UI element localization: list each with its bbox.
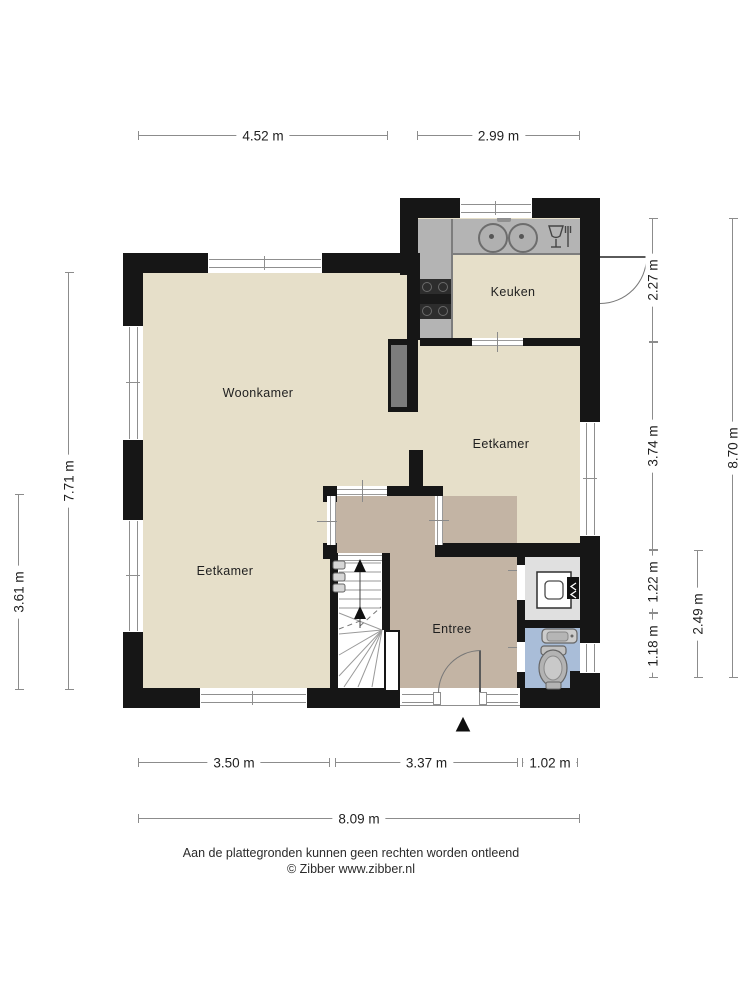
north-arrow-icon: ▲ — [451, 712, 476, 737]
dimension-top-left: 4.52 m — [138, 135, 388, 136]
dimension-left-total: 7.71 m — [68, 272, 69, 690]
window-bottom-left — [200, 688, 307, 708]
opening-tick — [429, 520, 449, 521]
footer: Aan de plattegronden kunnen geen rechten… — [1, 845, 701, 877]
wall-entree-top — [387, 486, 443, 496]
dimension-bottom-1: 3.50 m — [138, 762, 330, 763]
door-gap-toilet — [517, 642, 525, 672]
chimney-fill — [391, 345, 407, 407]
wall-south-rooms-top — [443, 543, 600, 557]
door-gap-meterkast — [517, 565, 525, 600]
wall-bottomright-corner — [570, 671, 600, 708]
window-toilet-right — [580, 643, 600, 673]
opening-stair-top — [338, 553, 382, 561]
wall-stair-left — [330, 553, 338, 688]
room-label-eetkamer-right: Eetkamer — [473, 437, 530, 451]
dimension-left-inner: 3.61 m — [18, 494, 19, 690]
window-kitchen-top — [460, 198, 532, 218]
window-eetkamer-right — [580, 422, 600, 536]
sink-drain-right — [519, 234, 524, 239]
wall-exterior-left — [123, 253, 143, 708]
dimension-top-right: 2.99 m — [417, 135, 580, 136]
window-top-main — [208, 253, 322, 273]
window-left-upper — [123, 326, 143, 440]
room-label-entree: Entree — [432, 622, 471, 636]
stair-newel-post — [384, 630, 400, 692]
dimension-bottom-3: 1.02 m — [522, 762, 578, 763]
opening-tick — [317, 521, 337, 522]
floor-meterkast — [525, 557, 580, 620]
window-left-lower — [123, 520, 143, 632]
opening-tick — [362, 480, 363, 502]
wall-exterior-bottom — [123, 688, 600, 708]
wall-meterkast-toilet — [525, 620, 580, 628]
wall-kitchen-left — [400, 198, 418, 275]
room-label-woonkamer: Woonkamer — [223, 386, 294, 400]
footer-copyright: © Zibber www.zibber.nl — [1, 861, 701, 877]
stove-icon — [419, 279, 451, 319]
dimension-right-3: 1.22 m — [652, 550, 653, 613]
room-label-keuken: Keuken — [491, 285, 536, 299]
dimension-right-2: 3.74 m — [652, 342, 653, 550]
opening-tick — [497, 332, 498, 352]
wall-woonkamer-keuken — [407, 273, 420, 340]
dimension-right-total: 8.70 m — [732, 218, 733, 678]
dimension-right-1: 2.27 m — [652, 218, 653, 342]
floor-plan: ▲ Keuken Woonkamer Eetkamer Eetkamer Ent… — [0, 0, 750, 1000]
footer-disclaimer: Aan de plattegronden kunnen geen rechten… — [1, 845, 701, 861]
sink-drain-left — [489, 234, 494, 239]
room-label-eetkamer-left: Eetkamer — [197, 564, 254, 578]
kitchen-door-arc — [600, 257, 647, 304]
wall-stair-right — [382, 553, 390, 630]
dimension-right-4: 1.18 m — [652, 613, 653, 678]
dimension-right-mid: 2.49 m — [697, 550, 698, 678]
dimension-bottom-2: 3.37 m — [335, 762, 518, 763]
opening-tick — [508, 647, 517, 648]
opening-tick — [508, 570, 517, 571]
dimension-bottom-total: 8.09 m — [138, 818, 580, 819]
